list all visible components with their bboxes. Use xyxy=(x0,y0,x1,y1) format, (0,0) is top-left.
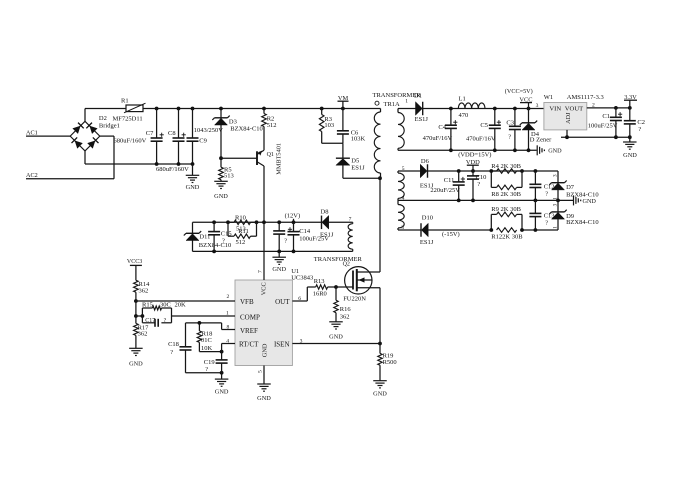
svg-text:(-15V): (-15V) xyxy=(442,231,460,238)
svg-text:C3: C3 xyxy=(506,120,514,127)
svg-text:C1: C1 xyxy=(602,113,610,120)
svg-text:Q1: Q1 xyxy=(267,152,274,158)
svg-text:RT/CT: RT/CT xyxy=(239,341,259,349)
svg-text:D7: D7 xyxy=(566,184,575,191)
svg-text:3: 3 xyxy=(300,339,303,345)
svg-text:2: 2 xyxy=(592,102,595,108)
svg-text:L1: L1 xyxy=(459,96,466,103)
svg-text:?: ? xyxy=(284,238,287,245)
svg-text:VREF: VREF xyxy=(240,327,258,335)
svg-text:FU220N: FU220N xyxy=(343,295,366,302)
svg-text:512: 512 xyxy=(267,122,277,129)
svg-text:362: 362 xyxy=(139,287,149,294)
svg-text:?: ? xyxy=(545,190,548,197)
svg-text:6: 6 xyxy=(298,296,301,302)
svg-text:512: 512 xyxy=(236,239,246,246)
svg-text:C7: C7 xyxy=(146,130,154,137)
svg-text:?: ? xyxy=(205,366,208,373)
svg-text:R16: R16 xyxy=(340,306,352,313)
svg-text:GND: GND xyxy=(329,334,343,341)
svg-text:470: 470 xyxy=(459,112,469,119)
svg-text:R9 2K 30B: R9 2K 30B xyxy=(491,206,521,213)
svg-text:(12V): (12V) xyxy=(285,213,301,220)
svg-text:D2: D2 xyxy=(99,115,107,122)
svg-text:R10: R10 xyxy=(235,214,246,221)
svg-text:C8: C8 xyxy=(168,130,176,137)
svg-text:OUT: OUT xyxy=(275,298,290,306)
svg-text:GND: GND xyxy=(548,148,562,155)
svg-text:Q2: Q2 xyxy=(343,262,350,268)
svg-text:5: 5 xyxy=(258,370,264,373)
svg-text:680uF/160V: 680uF/160V xyxy=(114,138,147,145)
svg-text:GND: GND xyxy=(129,360,143,367)
svg-text:GND: GND xyxy=(623,152,637,159)
svg-text:UC3843: UC3843 xyxy=(291,274,313,281)
svg-text:VFB: VFB xyxy=(240,298,254,306)
svg-text:ISEN: ISEN xyxy=(274,341,290,349)
svg-text:MF725D11: MF725D11 xyxy=(113,115,143,122)
svg-text:AC1: AC1 xyxy=(26,129,38,136)
svg-text:MMBT5401: MMBT5401 xyxy=(275,143,282,175)
svg-text:R15: R15 xyxy=(142,301,153,308)
svg-text:ES1J: ES1J xyxy=(320,231,334,238)
svg-text:D3: D3 xyxy=(229,118,237,125)
svg-text:1: 1 xyxy=(553,226,559,229)
svg-text:GND: GND xyxy=(272,266,286,273)
svg-text:470uF/16V: 470uF/16V xyxy=(423,135,453,142)
svg-text:4: 4 xyxy=(226,339,229,345)
svg-text:3: 3 xyxy=(553,174,559,177)
svg-text:?: ? xyxy=(545,220,548,227)
svg-text:D5: D5 xyxy=(351,158,359,165)
svg-text:VCC3: VCC3 xyxy=(127,259,142,265)
svg-text:470uF/16V: 470uF/16V xyxy=(466,136,496,143)
svg-text:R11: R11 xyxy=(238,228,249,235)
svg-text:BZX84-C10: BZX84-C10 xyxy=(566,219,599,226)
svg-text:BZX84-C10: BZX84-C10 xyxy=(230,126,262,133)
svg-text:TR1A: TR1A xyxy=(384,101,401,108)
svg-text:C2: C2 xyxy=(637,119,645,126)
svg-text:?: ? xyxy=(508,134,511,141)
svg-text:VOUT: VOUT xyxy=(565,105,583,112)
svg-text:7: 7 xyxy=(257,270,263,273)
svg-text:C4: C4 xyxy=(438,124,446,131)
svg-text:1: 1 xyxy=(226,311,229,317)
svg-text:?: ? xyxy=(222,237,225,244)
svg-text:D8: D8 xyxy=(321,209,329,216)
svg-text:220uF/25V: 220uF/25V xyxy=(430,187,460,194)
svg-text:D1: D1 xyxy=(414,93,422,100)
svg-text:(VCC=5V): (VCC=5V) xyxy=(505,88,533,95)
svg-text:AMS1117-3.3: AMS1117-3.3 xyxy=(567,94,604,101)
svg-text:R13: R13 xyxy=(314,278,325,285)
svg-text:GND: GND xyxy=(186,184,200,191)
svg-text:C19: C19 xyxy=(204,359,215,366)
svg-text:VIN: VIN xyxy=(549,105,561,112)
svg-text:1043/250V: 1043/250V xyxy=(194,127,224,134)
svg-text:C18: C18 xyxy=(168,341,179,348)
svg-text:D Zener: D Zener xyxy=(530,137,552,144)
svg-text:362: 362 xyxy=(340,314,350,321)
svg-text:ES1J: ES1J xyxy=(420,239,434,246)
svg-text:Bridge1: Bridge1 xyxy=(99,123,120,130)
svg-text:7: 7 xyxy=(349,216,352,222)
svg-text:R500: R500 xyxy=(383,359,397,366)
svg-text:GND: GND xyxy=(257,395,271,402)
svg-text:C14: C14 xyxy=(299,228,311,235)
svg-text:R4 2K 30B: R4 2K 30B xyxy=(491,163,521,170)
svg-text:?: ? xyxy=(170,349,173,356)
svg-text:513: 513 xyxy=(224,173,234,180)
svg-text:C9: C9 xyxy=(199,137,207,144)
svg-text:20K: 20K xyxy=(175,301,187,308)
svg-text:?: ? xyxy=(164,318,167,324)
svg-text:30C: 30C xyxy=(160,301,171,308)
svg-text:3: 3 xyxy=(536,103,539,109)
svg-text:COMP: COMP xyxy=(240,313,260,321)
svg-text:?: ? xyxy=(638,126,641,133)
svg-text:C17: C17 xyxy=(145,318,155,324)
svg-text:BZX84-C10: BZX84-C10 xyxy=(199,242,232,249)
svg-text:16R0: 16R0 xyxy=(313,291,327,298)
svg-text:GND: GND xyxy=(214,193,228,200)
svg-text:ES1J: ES1J xyxy=(415,116,429,123)
svg-text:VCC: VCC xyxy=(260,282,267,295)
svg-text:C11: C11 xyxy=(444,177,455,184)
svg-text:103: 103 xyxy=(324,122,334,129)
svg-text:D10: D10 xyxy=(422,215,433,222)
svg-text:?: ? xyxy=(477,181,480,188)
svg-text:ADJ: ADJ xyxy=(565,112,572,124)
svg-text:TRANSFORMER: TRANSFORMER xyxy=(314,256,363,263)
svg-text:R1: R1 xyxy=(121,98,129,105)
svg-text:C10: C10 xyxy=(476,174,487,181)
svg-text:8: 8 xyxy=(227,324,230,330)
svg-text:C5: C5 xyxy=(480,122,488,129)
svg-text:100uF/25V: 100uF/25V xyxy=(588,123,618,130)
svg-text:01C: 01C xyxy=(201,337,212,344)
svg-text:1: 1 xyxy=(405,98,408,104)
svg-text:10K: 10K xyxy=(201,345,213,352)
svg-text:GND: GND xyxy=(583,198,597,205)
svg-text:2: 2 xyxy=(227,294,230,300)
svg-text:ES1J: ES1J xyxy=(351,165,365,172)
svg-text:GND: GND xyxy=(262,343,269,357)
svg-text:R8 2K 30B: R8 2K 30B xyxy=(491,191,521,198)
svg-text:3: 3 xyxy=(553,203,559,206)
svg-text:W1: W1 xyxy=(544,94,553,101)
svg-text:(VDD=15V): (VDD=15V) xyxy=(458,152,491,159)
svg-text:GND: GND xyxy=(215,388,229,395)
svg-text:GND: GND xyxy=(373,390,387,397)
svg-text:103K: 103K xyxy=(351,136,366,143)
svg-text:R122K 30B: R122K 30B xyxy=(491,234,523,241)
svg-text:D6: D6 xyxy=(421,158,430,165)
svg-text:AC2: AC2 xyxy=(26,172,38,179)
svg-text:362: 362 xyxy=(138,331,148,338)
svg-text:680uF/160V: 680uF/160V xyxy=(156,166,189,173)
